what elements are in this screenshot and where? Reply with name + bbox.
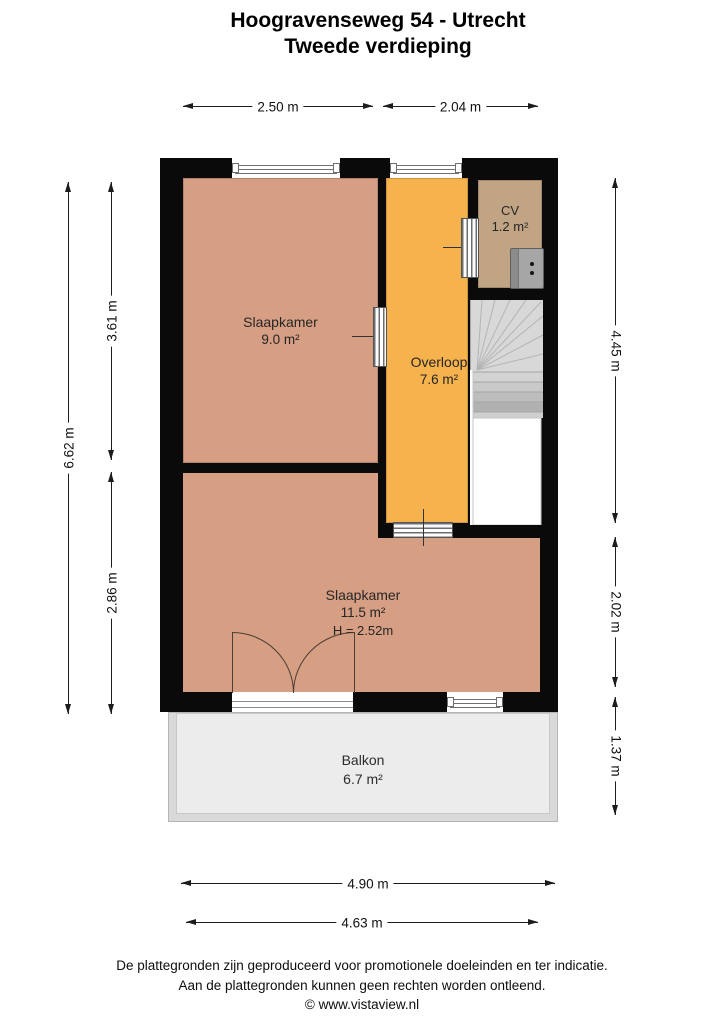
room-area: 1.2 m² — [476, 219, 544, 235]
disclaimer: De plattegronden zijn geproduceerd voor … — [0, 956, 724, 1015]
dimension-label: 4.45 m — [609, 325, 624, 376]
dimension-top-2: 2.04 m — [383, 106, 538, 107]
window-glazing — [450, 699, 500, 708]
dimension-right-1: 4.45 m — [615, 178, 616, 523]
arrow-icon — [612, 513, 618, 523]
arrow-icon — [181, 880, 191, 886]
dimension-label: 2.02 m — [609, 586, 624, 637]
door-handle-tick — [423, 509, 424, 546]
floorplan-page: Hoogravenseweg 54 - Utrecht Tweede verdi… — [0, 0, 724, 1024]
dimension-right-2: 2.02 m — [615, 537, 616, 687]
arrow-icon — [183, 103, 193, 109]
room-area: 6.7 m² — [169, 770, 557, 789]
balcony: Balkon 6.7 m² — [168, 712, 558, 822]
arrow-icon — [108, 182, 114, 192]
dimension-label: 6.62 m — [62, 422, 77, 473]
dimension-right-3: 1.37 m — [615, 697, 616, 815]
room-name: Slaapkamer — [183, 586, 543, 604]
room-overloop — [386, 178, 468, 523]
arrow-icon — [612, 178, 618, 188]
arrow-icon — [612, 677, 618, 687]
dimension-label: 3.61 m — [105, 295, 120, 346]
dimension-label: 2.50 m — [252, 100, 303, 115]
window-frame-cap — [496, 697, 503, 707]
french-door-opening — [232, 692, 353, 712]
arrow-icon — [65, 182, 71, 192]
label-balkon: Balkon 6.7 m² — [169, 751, 557, 789]
room-name: Overloop — [384, 353, 494, 371]
floorplan: Slaapkamer 9.0 m² Overloop 7.6 m² CV 1.2… — [160, 158, 558, 712]
arrow-icon — [186, 919, 196, 925]
arrow-icon — [612, 805, 618, 815]
dimension-label: 4.90 m — [342, 877, 393, 892]
disclaimer-line-1: De plattegronden zijn geproduceerd voor … — [0, 956, 724, 976]
dimension-top-1: 2.50 m — [183, 106, 373, 107]
room-ceiling-height: H = 2.52m — [183, 622, 543, 640]
boiler-icon — [510, 248, 544, 289]
dimension-label: 2.86 m — [105, 567, 120, 618]
arrow-icon — [108, 704, 114, 714]
arrow-icon — [545, 880, 555, 886]
arrow-icon — [528, 919, 538, 925]
dimension-left-total: 6.62 m — [68, 182, 69, 714]
room-area: 11.5 m² — [183, 604, 543, 622]
page-title: Hoogravenseweg 54 - Utrecht Tweede verdi… — [178, 8, 578, 60]
boiler-knob — [530, 262, 534, 266]
window-frame-cap — [390, 163, 397, 173]
door-handle-tick — [443, 247, 461, 248]
arrow-icon — [528, 103, 538, 109]
room-area: 7.6 m² — [384, 371, 494, 389]
dimension-left-2: 2.86 m — [111, 472, 112, 714]
dimension-bottom-2: 4.63 m — [186, 922, 538, 923]
dimension-label: 1.37 m — [609, 730, 624, 781]
title-floor: Tweede verdieping — [178, 34, 578, 60]
disclaimer-line-2: Aan de plattegronden kunnen geen rechten… — [0, 976, 724, 996]
label-overloop: Overloop 7.6 m² — [384, 353, 494, 389]
window-glazing — [235, 165, 337, 174]
room-name: Balkon — [169, 751, 557, 770]
room-name: Slaapkamer — [183, 313, 378, 331]
arrow-icon — [363, 103, 373, 109]
window-frame-cap — [455, 163, 462, 173]
arrow-icon — [108, 450, 114, 460]
arrow-icon — [383, 103, 393, 109]
window-symbol — [447, 692, 503, 712]
arrow-icon — [612, 537, 618, 547]
window-frame-cap — [333, 163, 340, 173]
copyright-credit: © www.vistaview.nl — [0, 995, 724, 1015]
room-name: CV — [476, 203, 544, 219]
boiler-knob — [530, 271, 534, 275]
label-slaapkamer-1: Slaapkamer 9.0 m² — [183, 313, 378, 349]
window-glazing — [393, 165, 459, 174]
door-sill — [232, 701, 353, 708]
window-frame-cap — [447, 697, 454, 707]
label-slaapkamer-2: Slaapkamer 11.5 m² H = 2.52m — [183, 586, 543, 640]
boiler-panel — [511, 249, 519, 288]
window-symbol — [390, 158, 462, 178]
arrow-icon — [612, 697, 618, 707]
dimension-left-1: 3.61 m — [111, 182, 112, 460]
dimension-bottom-1: 4.90 m — [181, 883, 555, 884]
stairs-icon — [468, 300, 543, 525]
window-symbol — [232, 158, 340, 178]
dimension-label: 4.63 m — [336, 916, 387, 931]
title-address: Hoogravenseweg 54 - Utrecht — [178, 8, 578, 34]
room-area: 9.0 m² — [183, 331, 378, 349]
arrow-icon — [65, 704, 71, 714]
arrow-icon — [108, 472, 114, 482]
label-cv: CV 1.2 m² — [476, 203, 544, 235]
window-frame-cap — [232, 163, 239, 173]
dimension-label: 2.04 m — [435, 100, 486, 115]
